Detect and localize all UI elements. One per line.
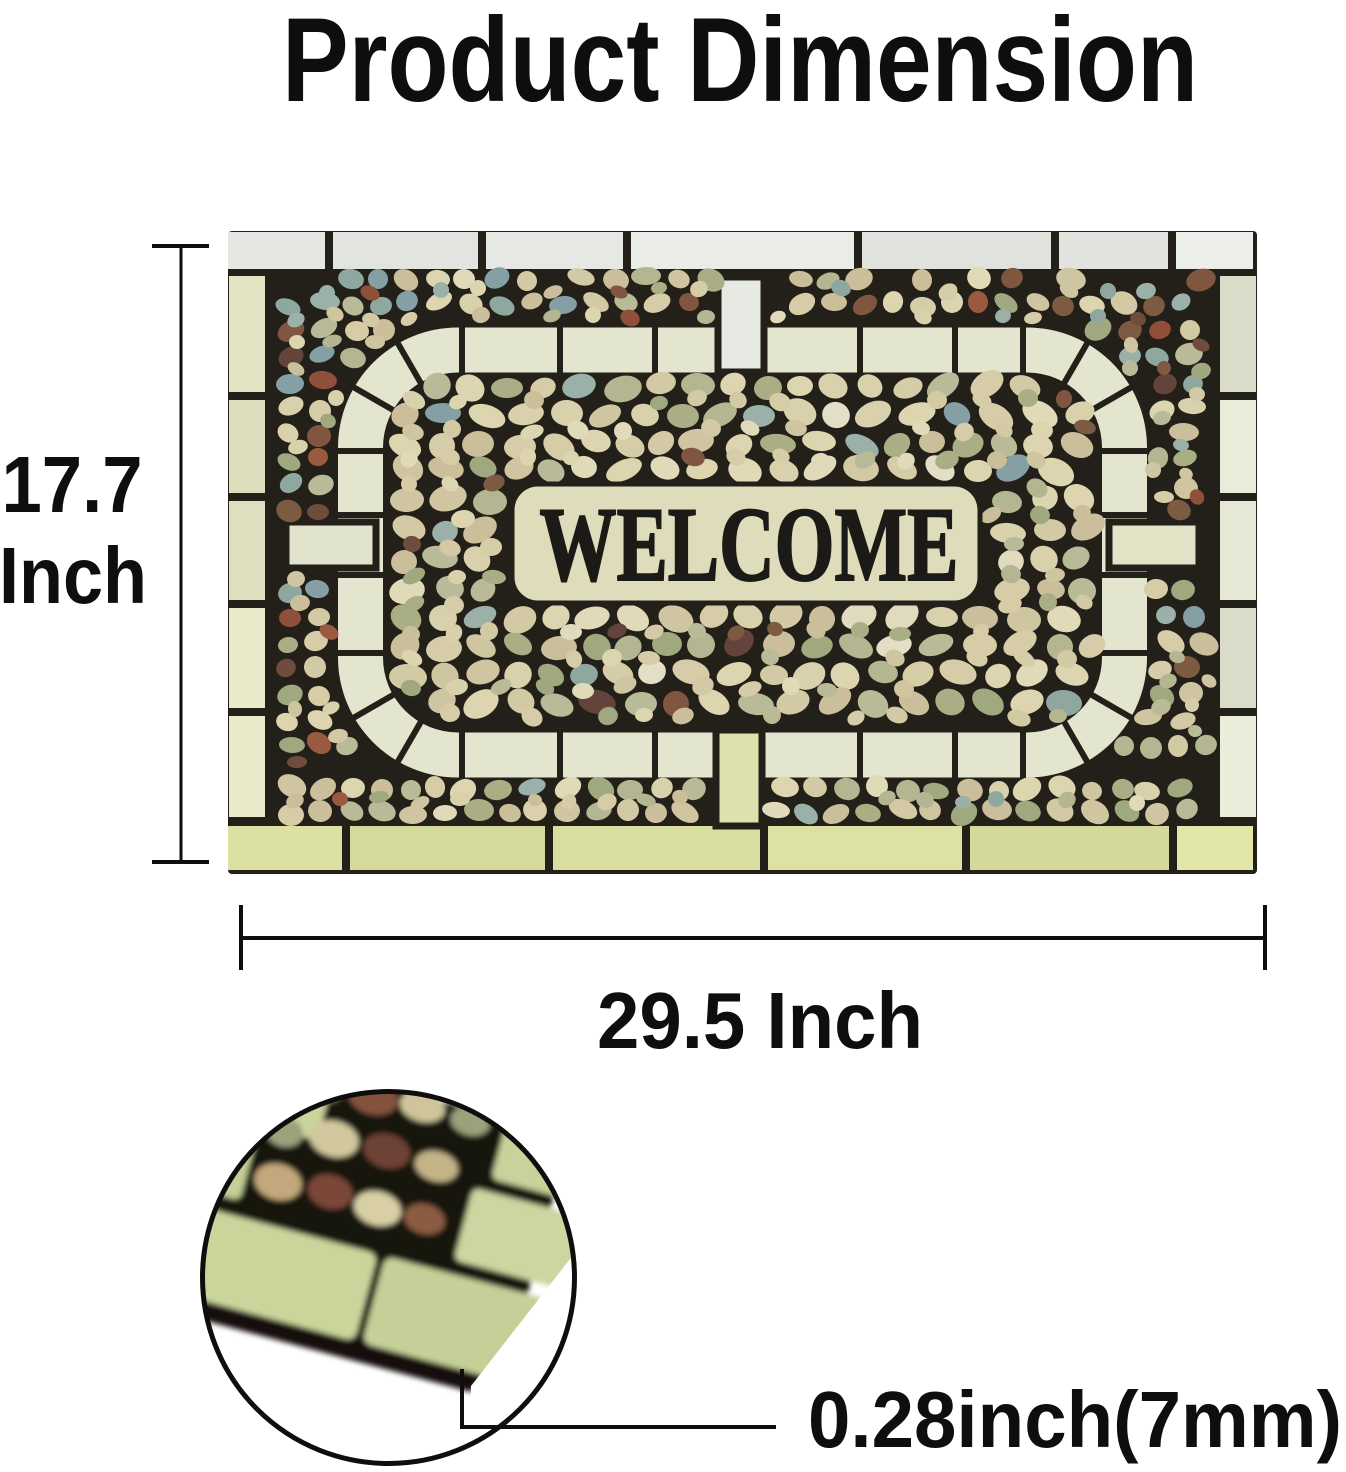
svg-text:Inch: Inch: [0, 531, 147, 620]
svg-text:Product Dimension: Product Dimension: [282, 0, 1198, 127]
svg-text:17.7: 17.7: [2, 440, 143, 529]
svg-text:WELCOME: WELCOME: [540, 486, 959, 603]
svg-text:29.5 Inch: 29.5 Inch: [597, 976, 923, 1065]
svg-text:0.28inch(7mm): 0.28inch(7mm): [808, 1375, 1342, 1464]
